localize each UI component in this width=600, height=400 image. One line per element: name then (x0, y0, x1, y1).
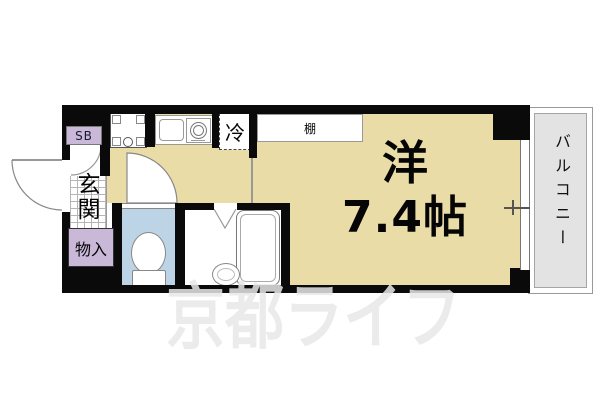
main-room-label: 洋 7.4帖 (295, 138, 515, 242)
room-type-label: 洋 (295, 138, 515, 189)
storage-label: 物入 (75, 236, 107, 260)
balcony-label: バルコニー (549, 133, 573, 253)
wall-top-right-notch (493, 105, 530, 140)
wall-window-bottom (510, 268, 530, 293)
watermark-text: 京都ライフ (166, 258, 461, 363)
wall-pillar-sb (100, 114, 110, 176)
hall-door-arc-icon (127, 153, 177, 203)
wall-bottom-left-block (62, 265, 113, 293)
floor-plan: 冷 棚 SB 物入 玄関 洋 7. (0, 0, 600, 400)
wall-bath-top-right (237, 203, 290, 210)
shoe-box-label: SB (75, 129, 93, 143)
storage-closet: 物入 (68, 228, 114, 267)
wall-pillar-sink (212, 105, 219, 148)
shoe-box: SB (66, 126, 102, 145)
entrance-door-arc-icon (12, 160, 62, 210)
wall-bath-top-left (185, 203, 214, 210)
bathroom-door-icon (214, 209, 236, 228)
wall-pillar-washer (145, 105, 155, 147)
wall-fridge-shelf (249, 105, 257, 158)
genkan-door-arc-icon (71, 145, 101, 175)
balcony-window (520, 140, 530, 270)
wall-top (62, 105, 530, 114)
entrance-label: 玄関 (74, 172, 97, 222)
room-size-label: 7.4帖 (295, 194, 515, 242)
